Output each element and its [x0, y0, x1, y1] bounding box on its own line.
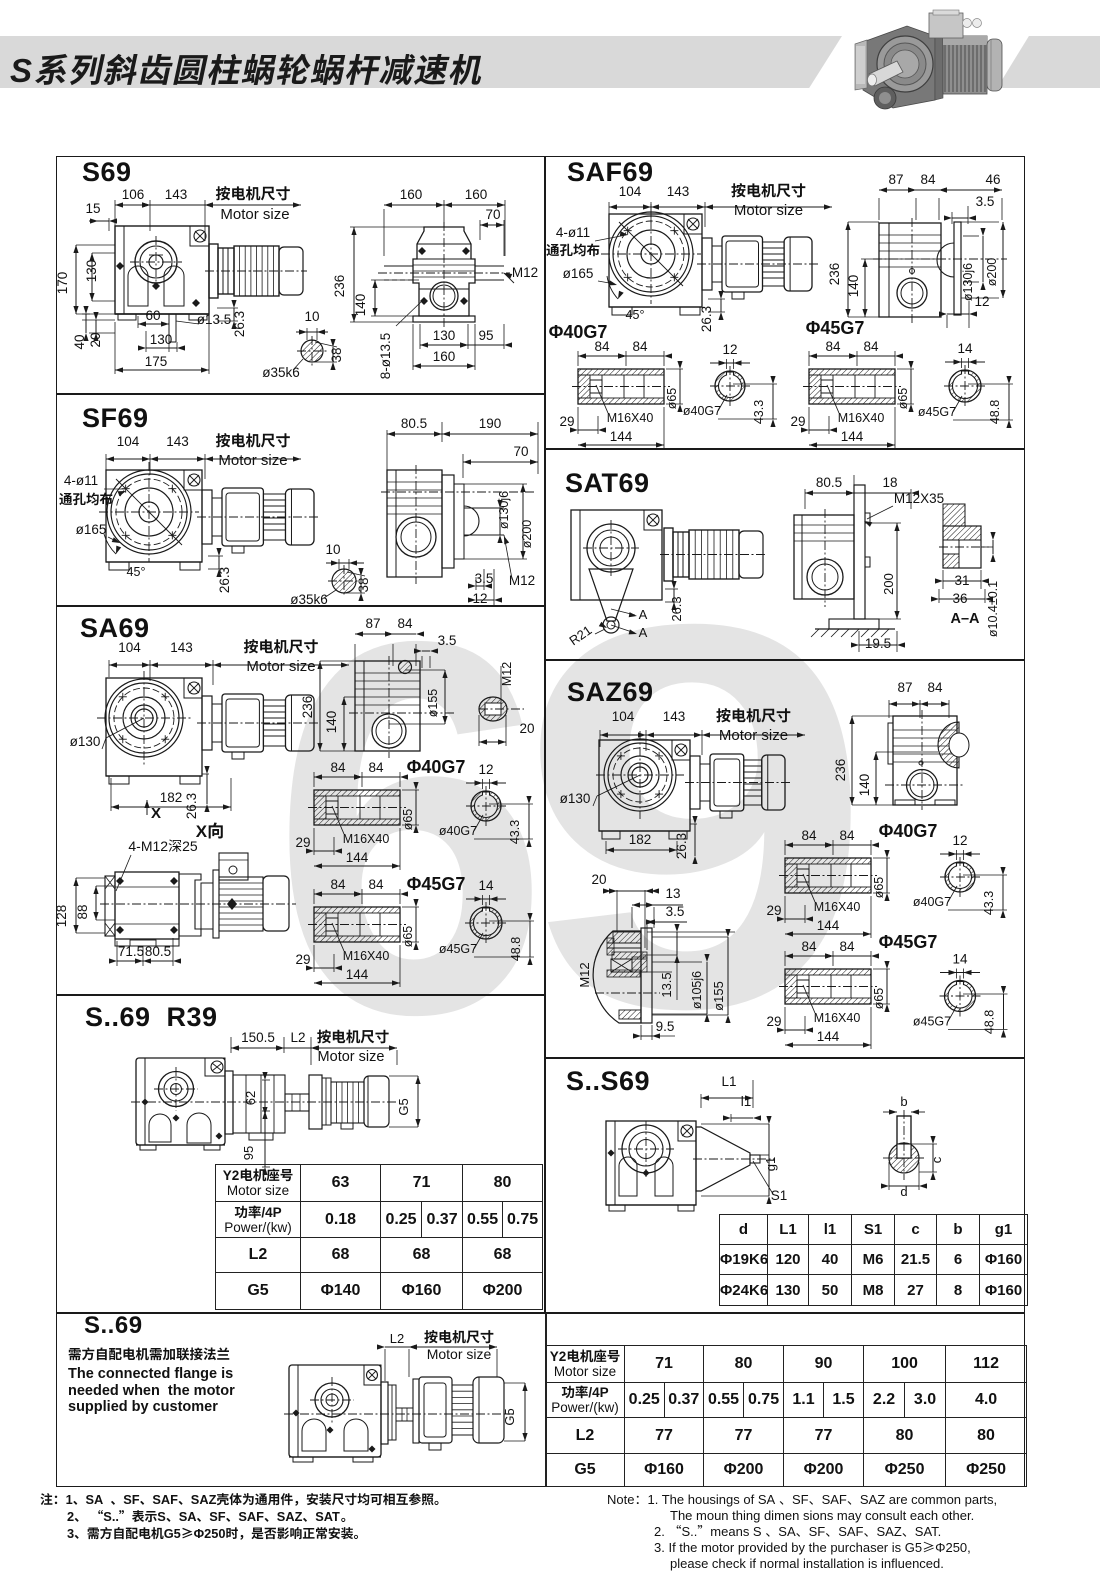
- svg-text:X: X: [151, 805, 161, 822]
- svg-text:14: 14: [952, 952, 968, 967]
- svg-text:SF: SF: [123, 1492, 140, 1507]
- svg-text:Motor size: Motor size: [246, 658, 315, 675]
- svg-text:3.5: 3.5: [438, 633, 457, 648]
- svg-text:S: S: [10, 52, 34, 89]
- svg-text:G5: G5: [502, 1408, 517, 1425]
- svg-text:14: 14: [478, 878, 494, 893]
- svg-text:1: 1: [66, 1492, 73, 1507]
- svg-text:144: 144: [346, 850, 369, 865]
- svg-text:ø105j6: ø105j6: [690, 971, 704, 1009]
- svg-text:182: 182: [160, 790, 183, 805]
- svg-text:25: 25: [182, 838, 198, 854]
- svg-text:ø45G7: ø45G7: [913, 1015, 951, 1029]
- svg-text:ø65: ø65: [665, 388, 679, 410]
- svg-text:M16X40: M16X40: [814, 900, 861, 914]
- svg-text:2.: 2.: [654, 1524, 665, 1539]
- svg-text:Motor size: Motor size: [218, 452, 287, 469]
- svg-text:ø130j6: ø130j6: [497, 491, 511, 529]
- svg-text:M16X40: M16X40: [814, 1011, 861, 1025]
- svg-text:Φ250: Φ250: [194, 1526, 226, 1541]
- svg-text:143: 143: [663, 709, 686, 724]
- svg-text:20: 20: [591, 872, 606, 887]
- svg-text:8-ø13.5: 8-ø13.5: [378, 333, 393, 380]
- svg-text:84: 84: [839, 939, 855, 954]
- svg-text:A–A: A–A: [950, 611, 980, 627]
- svg-text:ø155: ø155: [711, 981, 726, 1011]
- svg-text:140: 140: [324, 711, 339, 734]
- svg-text:ø40G7: ø40G7: [683, 404, 721, 418]
- svg-text:M12: M12: [500, 662, 514, 686]
- svg-text:10: 10: [325, 542, 340, 557]
- svg-text:L2: L2: [390, 1331, 404, 1346]
- svg-text:Motor size: Motor size: [427, 1346, 492, 1362]
- svg-text:84: 84: [825, 339, 841, 354]
- svg-text:26.3: 26.3: [699, 306, 714, 332]
- svg-text:A: A: [639, 625, 648, 640]
- svg-text:18: 18: [882, 475, 897, 490]
- svg-text:19.5: 19.5: [865, 636, 891, 651]
- svg-text:84: 84: [927, 680, 943, 695]
- svg-text:236: 236: [827, 263, 842, 286]
- svg-text:70: 70: [513, 444, 528, 459]
- svg-text:ø40G7: ø40G7: [439, 824, 477, 838]
- svg-text:26.3: 26.3: [674, 833, 689, 859]
- svg-text:SF: SF: [809, 1524, 826, 1539]
- svg-text:4-ø11: 4-ø11: [64, 473, 98, 488]
- svg-text:M16X40: M16X40: [607, 411, 654, 425]
- svg-text:R21: R21: [566, 622, 594, 648]
- svg-text:S1: S1: [771, 1188, 788, 1203]
- svg-text:128: 128: [54, 905, 69, 928]
- svg-text:ø200: ø200: [520, 520, 534, 549]
- svg-text:40: 40: [72, 334, 87, 349]
- svg-text:1. The housings of SA: 1. The housings of SA: [648, 1492, 776, 1507]
- svg-text:S..: S..: [682, 1524, 698, 1539]
- svg-text:84: 84: [920, 172, 936, 187]
- svg-text:38: 38: [329, 347, 344, 362]
- svg-text:130: 130: [433, 328, 456, 343]
- svg-text:S..: S..: [103, 1509, 119, 1524]
- svg-text:Motor size: Motor size: [719, 727, 788, 744]
- svg-text:ø13.5: ø13.5: [197, 312, 232, 327]
- svg-text:SAF: SAF: [238, 1509, 264, 1524]
- svg-text:SAF: SAF: [822, 1492, 847, 1507]
- svg-text:29: 29: [790, 414, 805, 429]
- svg-text:M16X40: M16X40: [343, 832, 390, 846]
- svg-text:144: 144: [817, 918, 840, 933]
- svg-text:143: 143: [165, 187, 188, 202]
- svg-text:The moun thing dimen sions may: The moun thing dimen sions may consult e…: [670, 1508, 974, 1523]
- svg-text:45°: 45°: [626, 308, 645, 322]
- svg-text:ø130: ø130: [560, 791, 591, 806]
- svg-text:ø155: ø155: [426, 689, 440, 718]
- svg-text:ø35k6: ø35k6: [262, 365, 300, 380]
- svg-text:26.3: 26.3: [669, 596, 684, 621]
- svg-text:g1: g1: [763, 1157, 778, 1171]
- svg-text:29: 29: [766, 903, 781, 918]
- svg-text:175: 175: [145, 354, 168, 369]
- svg-text:84: 84: [632, 339, 648, 354]
- svg-text:80.5: 80.5: [145, 944, 171, 959]
- svg-text:SA: SA: [179, 1509, 197, 1524]
- svg-text:88: 88: [75, 904, 90, 919]
- svg-text:200: 200: [881, 573, 896, 595]
- svg-text:84: 84: [801, 939, 817, 954]
- svg-text:SA: SA: [86, 1492, 104, 1507]
- svg-text:ø40G7: ø40G7: [913, 895, 951, 909]
- svg-text:Motor size: Motor size: [734, 202, 803, 219]
- svg-text:ø65: ø65: [896, 388, 910, 410]
- svg-text:84: 84: [368, 760, 384, 775]
- svg-text:143: 143: [166, 434, 189, 449]
- svg-text:12: 12: [952, 833, 967, 848]
- svg-text:Φ45G7: Φ45G7: [407, 874, 466, 894]
- svg-text:144: 144: [841, 429, 864, 444]
- svg-text:236: 236: [332, 275, 347, 298]
- svg-text:ø45G7: ø45G7: [439, 942, 477, 956]
- svg-text:87: 87: [897, 680, 912, 695]
- svg-text:160: 160: [433, 349, 456, 364]
- svg-text:106: 106: [122, 187, 145, 202]
- svg-text:15: 15: [85, 201, 100, 216]
- svg-text:84: 84: [397, 616, 413, 631]
- svg-text:ø200: ø200: [985, 258, 999, 287]
- svg-text:87: 87: [365, 616, 380, 631]
- svg-text:84: 84: [863, 339, 879, 354]
- svg-text:G5: G5: [396, 1098, 411, 1115]
- svg-text:ø165: ø165: [76, 522, 107, 537]
- svg-text:48.8: 48.8: [509, 937, 523, 961]
- svg-text:80.5: 80.5: [401, 416, 427, 431]
- svg-text:means S: means S: [710, 1524, 762, 1539]
- svg-text:29: 29: [559, 414, 574, 429]
- svg-text:144: 144: [610, 429, 633, 444]
- svg-text:SAF: SAF: [152, 1492, 178, 1507]
- svg-text:please check if normal install: please check if normal installation is i…: [670, 1556, 944, 1571]
- svg-text:S: S: [157, 1509, 166, 1524]
- svg-text:SAT: SAT: [315, 1509, 340, 1524]
- svg-text:95: 95: [478, 328, 493, 343]
- svg-text:ø65: ø65: [872, 988, 886, 1010]
- svg-text:87: 87: [888, 172, 903, 187]
- svg-text:143: 143: [667, 184, 690, 199]
- svg-text:L2: L2: [290, 1030, 305, 1045]
- svg-text:3.5: 3.5: [976, 194, 995, 209]
- svg-text:48.8: 48.8: [988, 400, 1002, 424]
- svg-text:104: 104: [118, 640, 141, 655]
- svg-text:45°: 45°: [127, 565, 146, 579]
- svg-text:13: 13: [665, 886, 680, 901]
- svg-text:Φ250,: Φ250,: [935, 1540, 971, 1555]
- svg-text:G5: G5: [164, 1526, 181, 1541]
- svg-text:12: 12: [478, 762, 493, 777]
- svg-text:43.3: 43.3: [508, 820, 522, 844]
- svg-text:M12: M12: [577, 962, 592, 987]
- svg-text:M12: M12: [509, 573, 535, 588]
- svg-text:70: 70: [485, 207, 500, 222]
- svg-text:Φ45G7: Φ45G7: [879, 932, 938, 952]
- svg-text:ø130: ø130: [70, 734, 101, 749]
- svg-text:3.5: 3.5: [666, 904, 685, 919]
- svg-text:130: 130: [150, 332, 173, 347]
- svg-text:29: 29: [766, 1014, 781, 1029]
- svg-text:140: 140: [353, 294, 368, 317]
- svg-text:20: 20: [519, 721, 534, 736]
- svg-text:144: 144: [346, 967, 369, 982]
- svg-text:ø165: ø165: [563, 266, 594, 281]
- svg-text:80.5: 80.5: [816, 475, 842, 490]
- svg-text:144: 144: [817, 1029, 840, 1044]
- svg-text:ø10.4±0.1: ø10.4±0.1: [986, 581, 1000, 637]
- svg-text:84: 84: [330, 877, 346, 892]
- svg-text:140: 140: [857, 774, 872, 797]
- svg-text:104: 104: [619, 184, 642, 199]
- svg-text:SAF: SAF: [838, 1524, 863, 1539]
- svg-text:60: 60: [145, 308, 160, 323]
- svg-text:SA: SA: [778, 1524, 796, 1539]
- svg-text:Φ45G7: Φ45G7: [806, 318, 865, 338]
- svg-text:236: 236: [300, 696, 315, 719]
- svg-text:9.5: 9.5: [656, 1019, 675, 1034]
- svg-text:ø65: ø65: [401, 809, 415, 831]
- svg-text:84: 84: [839, 828, 855, 843]
- svg-text:c: c: [929, 1156, 944, 1163]
- svg-text:46: 46: [985, 172, 1000, 187]
- svg-text:150.5: 150.5: [241, 1030, 275, 1045]
- svg-text:12: 12: [974, 294, 989, 309]
- svg-text:104: 104: [612, 709, 635, 724]
- svg-text:M16X40: M16X40: [838, 411, 885, 425]
- svg-text:48.8: 48.8: [983, 1010, 997, 1034]
- svg-text:l1: l1: [741, 1094, 752, 1109]
- svg-text:84: 84: [368, 877, 384, 892]
- svg-text:Motor size: Motor size: [318, 1049, 385, 1065]
- svg-text:4-ø11: 4-ø11: [556, 225, 590, 240]
- svg-text:71.5: 71.5: [118, 944, 144, 959]
- svg-text:84: 84: [801, 828, 817, 843]
- svg-text:M12: M12: [512, 265, 538, 280]
- svg-text:SAZ: SAZ: [277, 1509, 303, 1524]
- svg-text:160: 160: [465, 187, 488, 202]
- svg-text:140: 140: [846, 275, 861, 298]
- svg-text:10: 10: [304, 309, 319, 324]
- svg-text:M16X40: M16X40: [343, 949, 390, 963]
- svg-text:SAZ: SAZ: [191, 1492, 217, 1507]
- svg-text:182: 182: [629, 832, 652, 847]
- svg-text:62: 62: [243, 1091, 258, 1105]
- svg-text:Φ40G7: Φ40G7: [407, 757, 466, 777]
- svg-text:104: 104: [117, 434, 140, 449]
- svg-text:ø65: ø65: [872, 877, 886, 899]
- svg-text:Note: Note: [607, 1492, 634, 1507]
- svg-text:143: 143: [170, 640, 193, 655]
- svg-text:b: b: [900, 1094, 907, 1109]
- svg-text:ø65: ø65: [401, 926, 415, 948]
- svg-text:12: 12: [722, 342, 737, 357]
- svg-text:29: 29: [295, 835, 310, 850]
- svg-text:84: 84: [594, 339, 610, 354]
- svg-text:ø35k6: ø35k6: [290, 592, 328, 607]
- svg-text:SAZ: SAZ: [877, 1524, 902, 1539]
- svg-text:3: 3: [67, 1526, 74, 1541]
- svg-text:Φ40G7: Φ40G7: [879, 821, 938, 841]
- svg-text:43.3: 43.3: [752, 400, 766, 424]
- svg-text:38: 38: [356, 577, 371, 592]
- svg-text:Motor size: Motor size: [220, 206, 289, 223]
- svg-text:160: 160: [400, 187, 423, 202]
- svg-text:26.3: 26.3: [184, 793, 199, 819]
- svg-text:43.3: 43.3: [982, 891, 996, 915]
- svg-text:2: 2: [67, 1509, 74, 1524]
- svg-text:SF: SF: [209, 1509, 226, 1524]
- svg-text:SF: SF: [792, 1492, 809, 1507]
- svg-text:12: 12: [472, 591, 487, 606]
- svg-text:29: 29: [295, 952, 310, 967]
- svg-text:190: 190: [479, 416, 502, 431]
- svg-text:ø45G7: ø45G7: [918, 405, 956, 419]
- svg-text:170: 170: [55, 272, 70, 295]
- svg-text:SAT.: SAT.: [915, 1524, 942, 1539]
- svg-text:L1: L1: [721, 1074, 736, 1089]
- svg-text:M12X35: M12X35: [894, 491, 944, 506]
- svg-text:13.5: 13.5: [659, 972, 674, 997]
- svg-text:SAZ are common parts,: SAZ are common parts,: [860, 1492, 997, 1507]
- svg-text:236: 236: [833, 759, 848, 782]
- svg-text:84: 84: [330, 760, 346, 775]
- svg-text:14: 14: [957, 341, 973, 356]
- svg-text:4-M12: 4-M12: [128, 838, 168, 854]
- svg-text:A: A: [639, 607, 648, 622]
- svg-text:95: 95: [241, 1146, 256, 1160]
- svg-text:3. If the motor provided by th: 3. If the motor provided by the purchase…: [654, 1540, 922, 1555]
